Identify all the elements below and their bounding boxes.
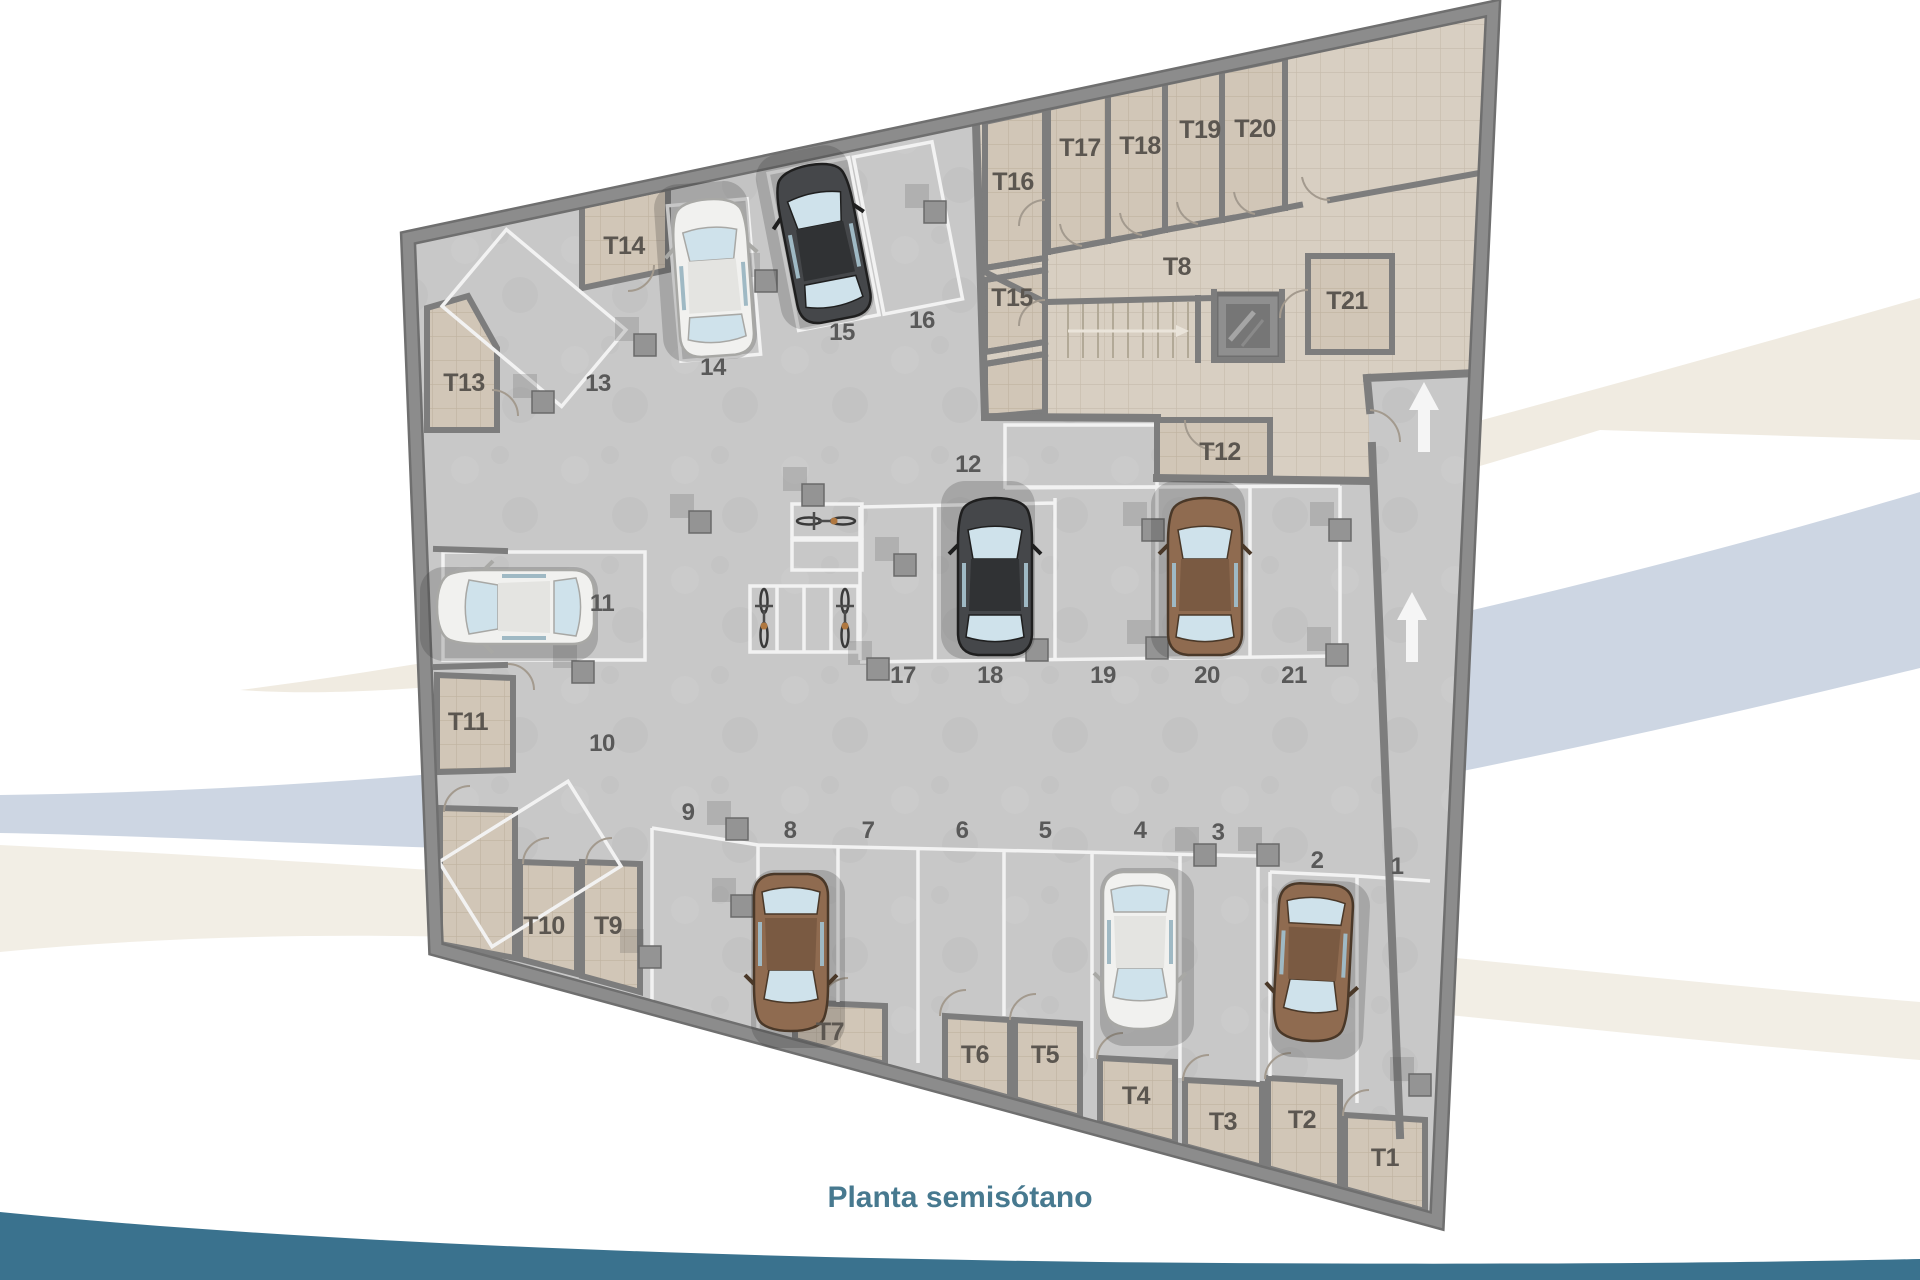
parking-spot-label-18: 18 bbox=[977, 662, 1003, 689]
parking-spot-label-20: 20 bbox=[1194, 662, 1220, 689]
parking-spot-label-21: 21 bbox=[1281, 662, 1307, 689]
room-T17 bbox=[1048, 95, 1108, 252]
car-spot-20 bbox=[1151, 481, 1251, 659]
footer-wave bbox=[0, 1212, 1920, 1280]
car-spot-2 bbox=[1262, 878, 1371, 1061]
car-spot-14 bbox=[652, 179, 764, 364]
parking-spot-label-6: 6 bbox=[956, 817, 969, 844]
parking-spot-label-7: 7 bbox=[862, 817, 875, 844]
parking-spot-label-17: 17 bbox=[890, 662, 916, 689]
parking-spot-label-14: 14 bbox=[700, 354, 727, 381]
storage-room-label-T11: T11 bbox=[448, 708, 489, 736]
storage-room-label-T19: T19 bbox=[1179, 116, 1221, 144]
storage-room-label-T1: T1 bbox=[1371, 1144, 1400, 1172]
parking-spot-label-1: 1 bbox=[1391, 853, 1404, 880]
parking-spot-label-11: 11 bbox=[590, 590, 615, 617]
page: 1 2 3 4 5 6 7 8 9 10 11 12 13 14 15 16 1… bbox=[0, 0, 1920, 1280]
car-spot-4 bbox=[1094, 868, 1194, 1046]
floor-plan: 1 2 3 4 5 6 7 8 9 10 11 12 13 14 15 16 1… bbox=[408, 8, 1493, 1221]
floor-plan-svg: 1 2 3 4 5 6 7 8 9 10 11 12 13 14 15 16 1… bbox=[0, 0, 1920, 1280]
storage-room-label-T3: T3 bbox=[1209, 1108, 1237, 1136]
parking-spot-label-2: 2 bbox=[1311, 847, 1324, 874]
parking-spot-label-15: 15 bbox=[829, 319, 855, 346]
parking-spot-label-8: 8 bbox=[784, 817, 797, 844]
storage-room-label-T18: T18 bbox=[1119, 132, 1161, 160]
storage-room-label-T21: T21 bbox=[1326, 287, 1368, 315]
storage-room-label-T5: T5 bbox=[1031, 1041, 1060, 1069]
storage-room-label-T15: T15 bbox=[991, 284, 1033, 312]
parking-spot-label-13: 13 bbox=[585, 370, 611, 397]
storage-room-label-T13: T13 bbox=[443, 369, 485, 397]
parking-spot-label-3: 3 bbox=[1212, 819, 1225, 846]
storage-room-label-T12: T12 bbox=[1199, 438, 1241, 466]
page-title: Planta semisótano bbox=[827, 1181, 1092, 1214]
room-T18 bbox=[1108, 83, 1165, 241]
storage-room-label-T20: T20 bbox=[1234, 115, 1276, 143]
storage-room-label-T14: T14 bbox=[603, 232, 645, 260]
storage-room-label-T7: T7 bbox=[816, 1018, 844, 1046]
staircase bbox=[1056, 300, 1198, 360]
parking-spot-label-9: 9 bbox=[682, 799, 695, 826]
room-T19 bbox=[1165, 71, 1222, 230]
parking-spot-label-16: 16 bbox=[909, 307, 935, 334]
parking-spot-label-19: 19 bbox=[1090, 662, 1116, 689]
car-spot-18 bbox=[941, 481, 1041, 659]
storage-room-label-T17: T17 bbox=[1059, 134, 1101, 162]
parking-spot-label-4: 4 bbox=[1134, 817, 1148, 844]
parking-spot-label-12: 12 bbox=[955, 451, 981, 478]
car-spot-11 bbox=[420, 561, 598, 661]
storage-room-label-T4: T4 bbox=[1122, 1082, 1151, 1110]
storage-room-label-T8: T8 bbox=[1163, 253, 1192, 281]
parking-spot-label-10: 10 bbox=[589, 730, 615, 757]
storage-room-label-T2: T2 bbox=[1288, 1106, 1316, 1134]
parking-spot-label-5: 5 bbox=[1039, 817, 1052, 844]
elevator-shaft bbox=[1216, 294, 1280, 358]
storage-room-label-T9: T9 bbox=[594, 912, 622, 940]
storage-room-label-T16: T16 bbox=[992, 168, 1034, 196]
storage-room-label-T10: T10 bbox=[523, 912, 565, 940]
storage-room-label-T6: T6 bbox=[961, 1041, 989, 1069]
